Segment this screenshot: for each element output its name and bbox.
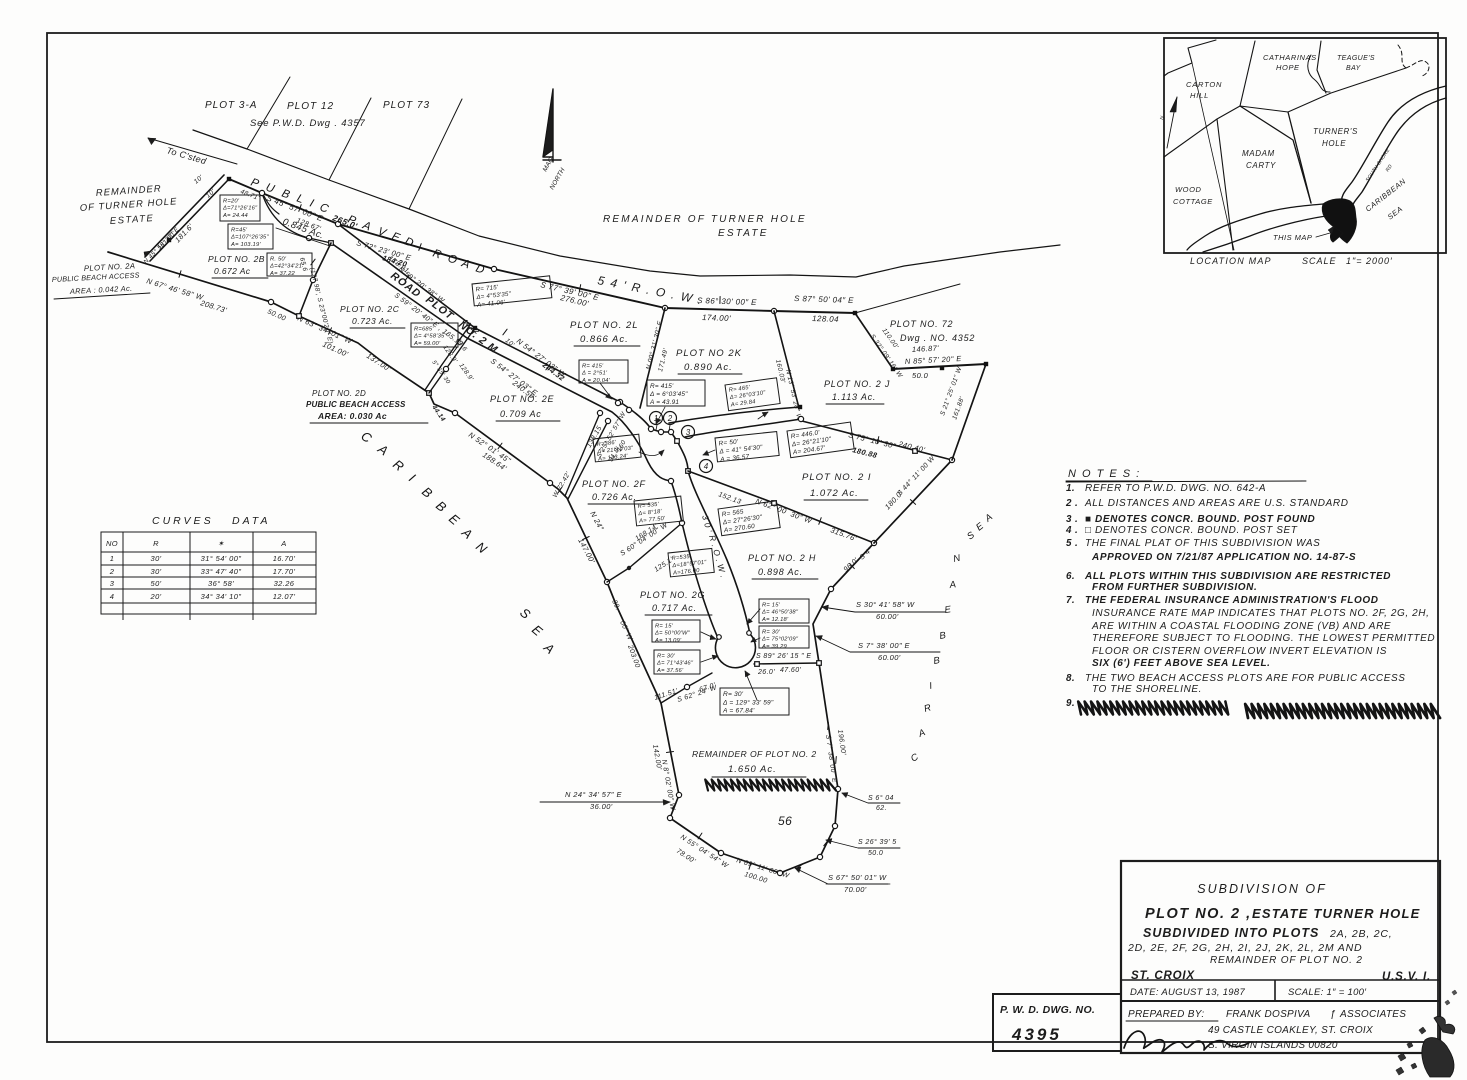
svg-text:174.00': 174.00' [702,313,731,323]
svg-text:THE FINAL PLAT OF THIS SU: THE FINAL PLAT OF THIS SUBDIVISION WAS [1085,538,1320,549]
svg-text:MADAM: MADAM [1242,149,1275,158]
svg-text:CATHARINAS: CATHARINAS [1263,53,1317,62]
svg-text:COTTAGE: COTTAGE [1173,197,1213,206]
svg-text:PLOT NO. 2L: PLOT NO. 2L [570,320,639,331]
svg-text:3: 3 [686,428,691,437]
svg-text:1.650 Ac.: 1.650 Ac. [728,764,777,775]
svg-text:2 .: 2 . [1065,498,1078,509]
svg-text:HOLE: HOLE [1322,139,1346,148]
svg-text:Δ=71°26'16": Δ=71°26'16" [222,206,258,212]
svg-text:0.709 Ac: 0.709 Ac [500,409,542,419]
svg-text:DATA: DATA [232,515,270,527]
svg-text:PLOT NO. 2 ,: PLOT NO. 2 , [1145,906,1252,922]
svg-text:R=20': R=20' [223,198,240,204]
svg-text:PREPARED BY:: PREPARED BY: [1128,1009,1204,1020]
svg-text:REFER TO P.W.D. DWG. NO. 6: REFER TO P.W.D. DWG. NO. 642-A [1085,483,1266,494]
svg-text:4395: 4395 [1011,1025,1062,1044]
svg-text:0.866 Ac.: 0.866 Ac. [580,334,629,345]
svg-text:R= 30': R= 30' [657,653,676,659]
svg-text:REMAINDER OF PLOT NO. 2: REMAINDER OF PLOT NO. 2 [692,749,817,759]
svg-text:5 .: 5 . [1066,538,1078,549]
svg-text:ESTATE TURNER HOLE: ESTATE TURNER HOLE [1252,906,1420,921]
svg-text:Δ = 6°03'45": Δ = 6°03'45" [649,390,688,398]
svg-text:N 24° 34' 57″ E: N 24° 34' 57″ E [565,790,622,799]
svg-text:R. 50': R. 50' [270,256,287,262]
svg-text:PLOT NO. 2E: PLOT NO. 2E [490,394,555,404]
svg-text:PLOT NO 2K: PLOT NO 2K [676,348,742,359]
svg-text:PLOT NO. 2 I: PLOT NO. 2 I [802,472,872,483]
svg-text:12.07': 12.07' [273,592,296,601]
svg-text:Δ = 129° 33' 59": Δ = 129° 33' 59" [722,698,774,706]
svg-text:17.70': 17.70' [273,567,296,576]
svg-text:HILL: HILL [1190,91,1209,100]
svg-text:Δ= 46°50'38": Δ= 46°50'38" [761,610,799,616]
svg-text:PLOT 73: PLOT 73 [383,100,430,111]
svg-text:A: A [280,539,286,548]
svg-text:R= 415': R= 415' [650,383,674,390]
svg-text:SCALE: SCALE [1302,256,1337,266]
svg-text:R= 30': R= 30' [723,691,744,698]
svg-text:34° 34' 10": 34° 34' 10" [201,592,242,601]
svg-text:A= 37.22: A= 37.22 [269,271,296,277]
svg-text:ST. CROIX: ST. CROIX [1131,970,1195,982]
svg-text:0.723 Ac.: 0.723 Ac. [352,316,393,326]
svg-text:0.726 Ac.: 0.726 Ac. [592,492,637,502]
svg-text:36° 58': 36° 58' [208,579,234,588]
svg-text:PLOT 12: PLOT 12 [287,101,334,112]
svg-text:2: 2 [109,567,115,576]
svg-text:50': 50' [151,579,162,588]
svg-text:A= 103.19': A= 103.19' [230,242,261,248]
svg-text:6.: 6. [1066,571,1075,582]
svg-text:0.672 Ac: 0.672 Ac [214,266,251,276]
svg-text:R= 30': R= 30' [762,629,781,635]
svg-text:56: 56 [778,814,792,828]
svg-text:S 7° 38' 00" E: S 7° 38' 00" E [858,641,910,650]
svg-text:3 .: 3 . [1066,514,1078,525]
svg-text:1: 1 [110,554,115,563]
svg-text:Δ=107°26'35": Δ=107°26'35" [230,235,269,241]
svg-text:TO THE SHORELINE.: TO THE SHORELINE. [1092,684,1202,695]
svg-text:146.87': 146.87' [912,344,940,354]
svg-text:THE FEDERAL INSURANCE ADMIN: THE FEDERAL INSURANCE ADMINISTRATION'S F… [1085,595,1379,606]
svg-text:60.00': 60.00' [876,612,899,621]
svg-text:PLOT NO. 2B: PLOT NO. 2B [208,254,265,264]
svg-text:WOOD: WOOD [1175,185,1202,194]
svg-text:■ DENOTES CONCR. BOUND. POS: ■ DENOTES CONCR. BOUND. POST FOUND [1085,514,1315,525]
svg-text:9.: 9. [1066,698,1075,709]
svg-text:0.898 Ac.: 0.898 Ac. [758,567,803,577]
svg-text:A = 20.04': A = 20.04' [581,378,611,384]
svg-text:0.717 Ac.: 0.717 Ac. [652,603,697,613]
svg-text:CARTY: CARTY [1246,161,1276,170]
svg-text:50.0: 50.0 [912,371,929,380]
svg-text:ESTATE: ESTATE [718,228,769,239]
svg-text:2: 2 [667,414,673,423]
svg-text:S 26° 39' 5: S 26° 39' 5 [858,838,897,846]
svg-text:CARTON: CARTON [1186,80,1222,89]
svg-text:8.: 8. [1066,673,1075,684]
svg-text:R: R [153,539,159,548]
svg-text:2A, 2B, 2C,: 2A, 2B, 2C, [1329,928,1393,940]
svg-text:ARE WITHIN A COASTAL FLOOD: ARE WITHIN A COASTAL FLOODING ZONE (VB) … [1091,621,1391,632]
svg-text:PLOT NO. 2 J: PLOT NO. 2 J [824,379,890,389]
svg-text:1.: 1. [1066,483,1075,494]
svg-text:R= 415': R= 415' [582,363,604,369]
svg-text:THIS MAP: THIS MAP [1273,233,1312,242]
svg-text:S. VIRGIN ISLANDS 00820: S. VIRGIN ISLANDS 00820 [1208,1040,1338,1051]
svg-text:R=45': R=45' [231,227,248,233]
svg-text:TURNER'S: TURNER'S [1313,127,1358,136]
svg-text:S 6° 04: S 6° 04 [868,794,894,802]
svg-text:FROM FURTHER SUBDIVISION.: FROM FURTHER SUBDIVISION. [1092,582,1257,593]
svg-text:49 CASTLE COAKLEY, ST. CROI: 49 CASTLE COAKLEY, ST. CROIX [1208,1025,1373,1036]
svg-text:33° 47' 40": 33° 47' 40" [201,567,242,576]
svg-text:U.S.V. I.: U.S.V. I. [1382,971,1431,983]
svg-text:0.890 Ac.: 0.890 Ac. [684,362,733,373]
svg-text:4 .: 4 . [1065,525,1078,536]
svg-text:Δ=42°34'21": Δ=42°34'21" [269,264,305,270]
svg-text:1.072 Ac.: 1.072 Ac. [810,488,859,499]
svg-text:ALL PLOTS WITHIN THIS SUBD: ALL PLOTS WITHIN THIS SUBDIVISION ARE RE… [1084,571,1391,582]
svg-text:PLOT NO. 72: PLOT NO. 72 [890,319,953,329]
svg-text:TEAGUE'S: TEAGUE'S [1337,55,1375,62]
svg-text:A= 12.18': A= 12.18' [761,617,789,623]
svg-text:Δ = 2°51': Δ = 2°51' [581,371,608,377]
svg-text:32.26: 32.26 [274,579,295,588]
svg-text:A= 13.09': A= 13.09' [654,638,682,644]
svg-text:S 30° 41' 58″ W: S 30° 41' 58″ W [856,600,915,609]
svg-text:HOPE: HOPE [1276,63,1300,72]
svg-text:SUBDIVISION OF: SUBDIVISION OF [1197,882,1326,896]
svg-text:ƒ: ƒ [1330,1009,1336,1020]
svg-text:REMAINDER OF PLOT NO. 2: REMAINDER OF PLOT NO. 2 [1210,955,1363,966]
svg-text:A = 67.84': A = 67.84' [722,708,755,715]
svg-text:INSURANCE RATE MAP INDICATE: INSURANCE RATE MAP INDICATES THAT PLOTS … [1092,608,1430,619]
svg-text:3: 3 [110,579,115,588]
svg-text:PLOT NO. 2C: PLOT NO. 2C [340,304,400,314]
svg-text:APPROVED ON 7/21/87 APPLICAT: APPROVED ON 7/21/87 APPLICATION NO. 14-8… [1091,552,1356,563]
svg-text:See P.W.D. Dwg . 4357: See P.W.D. Dwg . 4357 [250,118,366,129]
svg-text:ASSOCIATES: ASSOCIATES [1339,1009,1406,1020]
svg-text:SIX (6') FEET ABOVE SEA LE: SIX (6') FEET ABOVE SEA LEVEL. [1092,658,1271,669]
svg-text:128.04: 128.04 [812,314,839,324]
svg-text:R=685': R=685' [414,326,434,332]
svg-text:47.60': 47.60' [780,667,802,674]
svg-text:PLOT NO. 2D: PLOT NO. 2D [312,389,366,398]
svg-text:FRANK DOSPIVA: FRANK DOSPIVA [1226,1009,1311,1020]
svg-text:50.0: 50.0 [868,850,883,857]
svg-text:1.113 Ac.: 1.113 Ac. [832,392,876,402]
svg-text:4: 4 [704,462,709,471]
svg-text:CURVES: CURVES [152,515,214,527]
svg-text:30': 30' [151,554,162,563]
svg-text:31° 54' 00": 31° 54' 00" [201,554,242,563]
svg-text:20': 20' [150,592,162,601]
svg-text:S 67° 50' 01" W: S 67° 50' 01" W [828,873,887,882]
svg-text:PUBLIC BEACH ACCESS: PUBLIC BEACH ACCESS [306,400,406,409]
svg-text:BAY: BAY [1346,65,1362,72]
svg-text:P. W. D. DWG. NO.: P. W. D. DWG. NO. [1000,1004,1095,1016]
svg-text:62.: 62. [876,805,887,812]
svg-text:NO: NO [106,539,118,548]
svg-text:✶: ✶ [218,539,225,548]
svg-text:Δ= 4°58'35": Δ= 4°58'35" [413,334,447,340]
svg-text:A= 37.56': A= 37.56' [656,668,684,674]
svg-text:26.0': 26.0' [757,669,775,676]
svg-text:REMAINDER OF TURNER HOLE: REMAINDER OF TURNER HOLE [603,214,807,225]
svg-text:R= 15': R= 15' [762,602,781,608]
svg-text:PLOT NO. 2F: PLOT NO. 2F [582,479,646,489]
svg-text:PLOT NO. 2G: PLOT NO. 2G [640,590,705,600]
svg-text:A= 59.00': A= 59.00' [413,341,441,347]
svg-text:A = 43.91: A = 43.91 [649,399,679,406]
svg-text:36.00': 36.00' [590,802,613,811]
svg-text:SCALE: 1″ = 100′: SCALE: 1″ = 100′ [1288,987,1367,998]
svg-text:THEREFORE SUBJECT TO FLOODI: THEREFORE SUBJECT TO FLOODING. THE LOWES… [1092,633,1435,644]
svg-text:A: A [948,579,957,591]
svg-text:Dwg . NO. 4352: Dwg . NO. 4352 [900,333,975,343]
svg-text:Δ= 71°43'46": Δ= 71°43'46" [656,661,694,667]
svg-text:DATE: AUGUST 13, 1987: DATE: AUGUST 13, 1987 [1130,987,1245,998]
svg-text:2D, 2E, 2F, 2G, 2H, 2I, 2J, 2K: 2D, 2E, 2F, 2G, 2H, 2I, 2J, 2K, 2L, 2M A… [1127,942,1362,954]
svg-text:LOCATION MAP: LOCATION MAP [1190,256,1272,266]
svg-text:ALL DISTANCES AND AREAS AR: ALL DISTANCES AND AREAS ARE U.S. STANDAR… [1084,498,1349,509]
svg-text:THE TWO BEACH ACCESS PLOTS: THE TWO BEACH ACCESS PLOTS ARE FOR PUBLI… [1085,673,1406,684]
svg-text:N O T E S :: N O T E S : [1068,468,1141,480]
svg-text:SUBDIVIDED INTO PLOTS: SUBDIVIDED INTO PLOTS [1143,926,1319,940]
svg-text:30': 30' [151,567,162,576]
svg-text:Δ= 75°02'09": Δ= 75°02'09" [761,637,799,643]
svg-text:A= 24.44: A= 24.44 [222,213,248,219]
svg-text:60.00': 60.00' [878,653,901,662]
svg-text:PLOT 3-A: PLOT 3-A [205,100,257,111]
svg-text:□ DENOTES CONCR. BOUND. PO: □ DENOTES CONCR. BOUND. POST SET [1085,525,1298,536]
svg-text:16.70': 16.70' [273,554,296,563]
svg-text:PLOT NO. 2 H: PLOT NO. 2 H [748,553,816,563]
svg-text:S 89° 26' 15 " E: S 89° 26' 15 " E [756,652,811,660]
svg-text:AREA: 0.030 Ac: AREA: 0.030 Ac [317,411,387,421]
svg-text:A= 39.29: A= 39.29 [761,644,788,650]
svg-text:FLOOR OR CISTERN OVERFLOW: FLOOR OR CISTERN OVERFLOW INVERT ELEVATI… [1092,646,1387,657]
svg-text:70.00': 70.00' [844,885,867,894]
svg-text:1"= 2000′: 1"= 2000′ [1346,256,1393,266]
svg-text:4: 4 [110,592,115,601]
svg-text:Δ= 50°00'W": Δ= 50°00'W" [654,631,691,637]
svg-text:7.: 7. [1066,595,1075,606]
svg-text:R= 15': R= 15' [655,623,674,629]
